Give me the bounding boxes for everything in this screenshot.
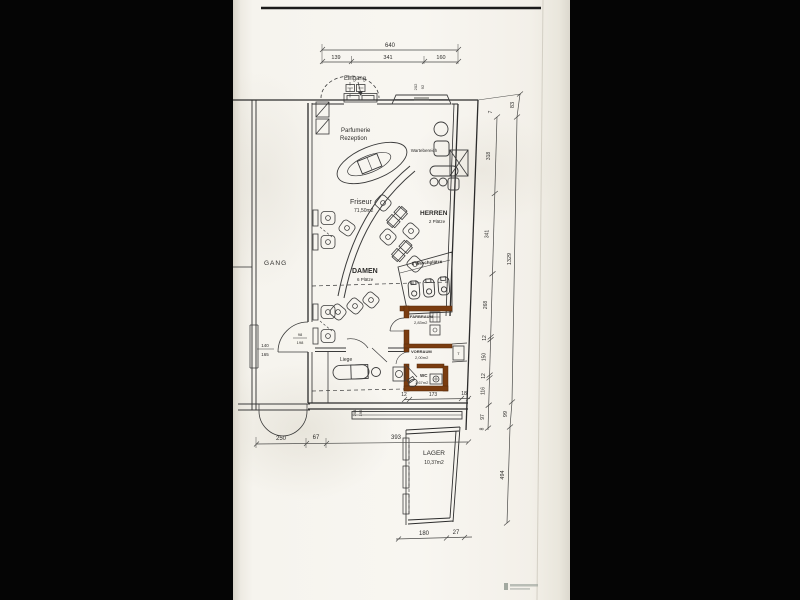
dim-label: 12 (481, 373, 487, 379)
svg-text:165: 165 (261, 352, 269, 357)
styling-island (328, 193, 424, 321)
dim-label: 180 (419, 531, 430, 537)
entrance-label: Eingang (344, 76, 366, 82)
dim-label: 18 (461, 391, 467, 397)
paper-artifacts (236, 0, 543, 600)
herren-label: HERREN (420, 210, 448, 217)
window-size-label: 202 (413, 83, 418, 90)
liege-room: Liege (315, 339, 404, 403)
dim-label: 150 (482, 353, 488, 362)
lager-area: 10,37m2 (424, 460, 444, 466)
dim-label: 97 (480, 414, 486, 420)
dim-label: 1329 (507, 253, 513, 265)
boiler-label: T (457, 351, 460, 356)
gang-label: GANG (264, 260, 287, 267)
dim-label: 318 (486, 152, 492, 161)
sill-size-label: 195 (358, 409, 363, 416)
damen-seats: 6 Plätze (357, 277, 374, 282)
reception-desk (332, 134, 413, 192)
entrance-door-marks (346, 85, 365, 92)
lager-label: LAGER (423, 450, 445, 457)
gang-window-size: 140 165 (257, 343, 274, 357)
stool (430, 178, 438, 186)
lager-room: LAGER 10,37m2 (403, 427, 460, 525)
entrance: Eingang (321, 76, 379, 102)
wartebereich: Wartebereich (411, 122, 468, 190)
farbraum-area: 2,83m2 (414, 320, 428, 325)
table (434, 122, 448, 136)
dim-label: 99 (503, 411, 509, 417)
dim-bottom-lager: 180 27 (396, 530, 472, 542)
vorraum-area: 2,00m2 (415, 355, 429, 360)
cabinet (430, 325, 440, 335)
dim-label: 116 (481, 387, 487, 395)
top-window: 202 92 (392, 83, 451, 104)
wall-piers (316, 102, 329, 134)
watermark-logo (504, 583, 538, 590)
dim-label: 640 (385, 43, 396, 49)
seat (448, 178, 459, 190)
damen-label: DAMEN (352, 268, 378, 275)
window-size-label: 92 (420, 84, 425, 89)
dim-label: 139 (331, 55, 340, 61)
friseur-area: 71,50m2 (354, 208, 374, 214)
massage-table (333, 364, 369, 379)
svg-text:140: 140 (261, 343, 269, 348)
svg-text:198: 198 (297, 340, 304, 345)
wc-label: WC (420, 373, 428, 378)
dim-bottom-main: 250 67 393 (254, 435, 471, 448)
bottom-sill: 204 195 (352, 409, 462, 419)
svg-text:98: 98 (298, 332, 303, 337)
dim-label: 160 (436, 55, 445, 61)
dim-label: 393 (391, 435, 402, 441)
scanned-floorplan-photo: 640 139 341 160 Eingang (0, 0, 800, 600)
dim-label: 12 (401, 392, 407, 398)
dim-label: 341 (383, 55, 392, 61)
dim-label: 268 (483, 301, 489, 310)
vorraum-label: VORRAUM (411, 349, 432, 354)
salon: Friseur 71,50m2 HERREN 2 Plätze DAMEN 6 … (312, 193, 448, 391)
hand-basin (393, 367, 405, 381)
herren-seats: 2 Plätze (429, 219, 446, 224)
dim-right-chain: 7 318 341 268 12 150 12 116 97 8 (480, 110, 501, 430)
rezeption-label: Rezeption (340, 136, 367, 142)
dim-label: 250 (276, 436, 287, 442)
styling-station (313, 210, 335, 344)
dim-label: 27 (453, 530, 460, 536)
gang-door-size: 98 198 (291, 330, 309, 345)
farbraum: FARBRAUM 2,83m2 (390, 312, 440, 335)
wash-basins (408, 277, 450, 300)
dim-top: 640 139 341 160 (320, 43, 461, 64)
dim-label: 341 (485, 230, 491, 239)
dim-label: 494 (500, 470, 506, 479)
stool (439, 178, 447, 186)
dim-label: 7 (488, 110, 494, 113)
sill-size-label: 204 (352, 409, 357, 416)
dim-label: 173 (429, 392, 438, 398)
shaft-x-box (450, 150, 468, 176)
curved-divider (338, 166, 415, 298)
dim-bottom-room: 12 173 18 (401, 391, 471, 402)
wc-room: WC 1,67m2 (393, 367, 442, 388)
dim-label: 12 (482, 335, 488, 341)
floorplan-drawing: 640 139 341 160 Eingang (0, 0, 800, 600)
dim-label: 83 (510, 102, 516, 108)
parfumerie-label: Parfumerie (341, 128, 371, 134)
gang-corridor: GANG 140 165 98 198 (238, 260, 310, 436)
dim-label: 67 (313, 435, 320, 441)
waschplaetze-label: 3 Waschplätze (411, 259, 443, 266)
stool (372, 368, 381, 377)
friseur-label: Friseur (350, 199, 372, 206)
dim-label: 8 (480, 427, 486, 430)
liege-label: Liege (340, 357, 352, 363)
